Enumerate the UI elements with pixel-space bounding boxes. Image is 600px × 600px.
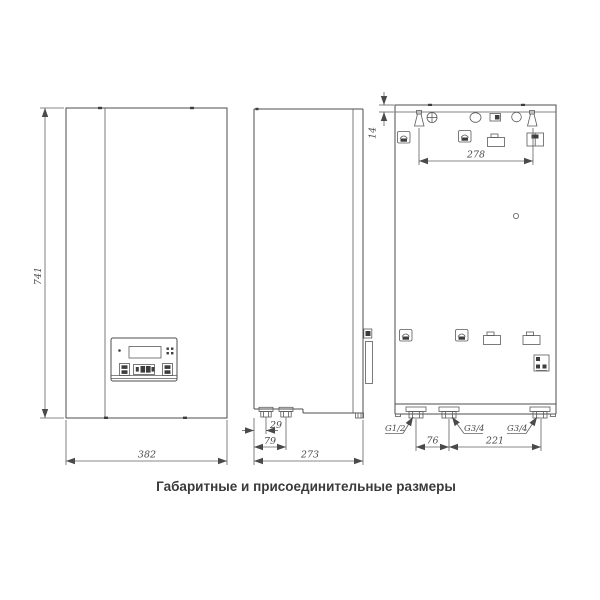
- indicator-dot: [167, 352, 169, 354]
- top-hole-oval: [470, 113, 481, 123]
- dim-label-382: 382: [138, 450, 156, 461]
- drawing-canvas: 741 382: [0, 0, 600, 600]
- top-screw-mark: [521, 104, 525, 106]
- dim-label-278: 278: [466, 150, 485, 161]
- cable-clamp-icon: [459, 131, 472, 143]
- thread-label-g34-right: G3/4: [507, 417, 537, 434]
- side-view: 29 79 273: [242, 108, 373, 465]
- label-g34-mid: G3/4: [464, 424, 484, 434]
- top-hole-round: [512, 112, 522, 122]
- dim-front-width: 382: [66, 420, 227, 465]
- cable-clamp-icon: [400, 330, 413, 342]
- dim-label-14: 14: [368, 127, 379, 139]
- cable-entry-plug: [490, 114, 501, 122]
- top-screw-mark: [428, 104, 432, 106]
- top-bracket-mark: [98, 107, 102, 109]
- rear-pipe-g12: [406, 407, 426, 418]
- dim-label-273: 273: [300, 450, 319, 461]
- rear-pipe-g34-mid: [439, 407, 459, 418]
- button-glyph: [122, 365, 128, 369]
- label-g34-right: G3/4: [507, 424, 527, 434]
- dim-label-76: 76: [426, 436, 438, 447]
- rating-label-icon: [534, 355, 549, 371]
- rear-view: 14 278 76 221 G1/2 G3/4: [368, 92, 557, 451]
- dim-label-79: 79: [264, 436, 276, 447]
- dim-label-221: 221: [485, 436, 504, 447]
- top-bracket-mark: [190, 107, 194, 109]
- dim-label-741: 741: [33, 267, 44, 285]
- dim-rear-top-fold: 14: [368, 92, 395, 139]
- bottom-bracket-mark: [183, 417, 187, 419]
- label-g12: G1/2: [385, 424, 405, 434]
- dim-rear-slot-spacing: 278: [419, 128, 533, 165]
- button-glyph: [165, 370, 171, 374]
- side-terminal-cover: [366, 342, 373, 384]
- rear-hole: [513, 213, 518, 218]
- indicator-dot: [167, 348, 169, 350]
- side-cable-gland: [364, 329, 372, 338]
- indicator-dot: [171, 352, 173, 354]
- wall-foot: [356, 413, 364, 418]
- control-panel: [111, 338, 177, 381]
- front-view: 741 382: [33, 107, 227, 465]
- mount-keyhole-slot-right: [528, 111, 538, 127]
- button-glyph: [136, 367, 139, 372]
- thread-label-g34-mid: G3/4: [452, 417, 484, 434]
- dim-side-pipe1: 29: [242, 417, 282, 465]
- junction-box-icon: [523, 332, 540, 345]
- display-screen: [129, 347, 161, 359]
- rear-pipe-g34-right: [530, 407, 550, 418]
- drawing-caption: Габаритные и присоединительные размеры: [156, 479, 456, 494]
- junction-box-icon: [488, 134, 505, 147]
- cable-clamp-icon: [456, 330, 469, 342]
- button-glyph: [152, 367, 155, 372]
- button-glyph: [165, 365, 171, 369]
- thread-label-g12: G1/2: [385, 417, 413, 434]
- technical-drawing: 741 382: [0, 0, 600, 600]
- screw-head-icon: [427, 113, 437, 123]
- dim-front-height: 741: [33, 108, 64, 418]
- top-corner-mark: [256, 108, 259, 110]
- button-glyph: [146, 366, 151, 373]
- dim-label-29: 29: [269, 420, 282, 431]
- cable-clamp-icon: [398, 132, 411, 144]
- mount-keyhole-slot-left: [415, 111, 425, 127]
- bottom-bracket-mark: [104, 417, 108, 419]
- button-glyph: [141, 366, 146, 373]
- junction-box-icon: [484, 332, 501, 345]
- led-indicator: [118, 349, 121, 352]
- terminal-block-icon: [527, 133, 544, 146]
- button-glyph: [122, 370, 128, 374]
- indicator-dot: [171, 348, 173, 350]
